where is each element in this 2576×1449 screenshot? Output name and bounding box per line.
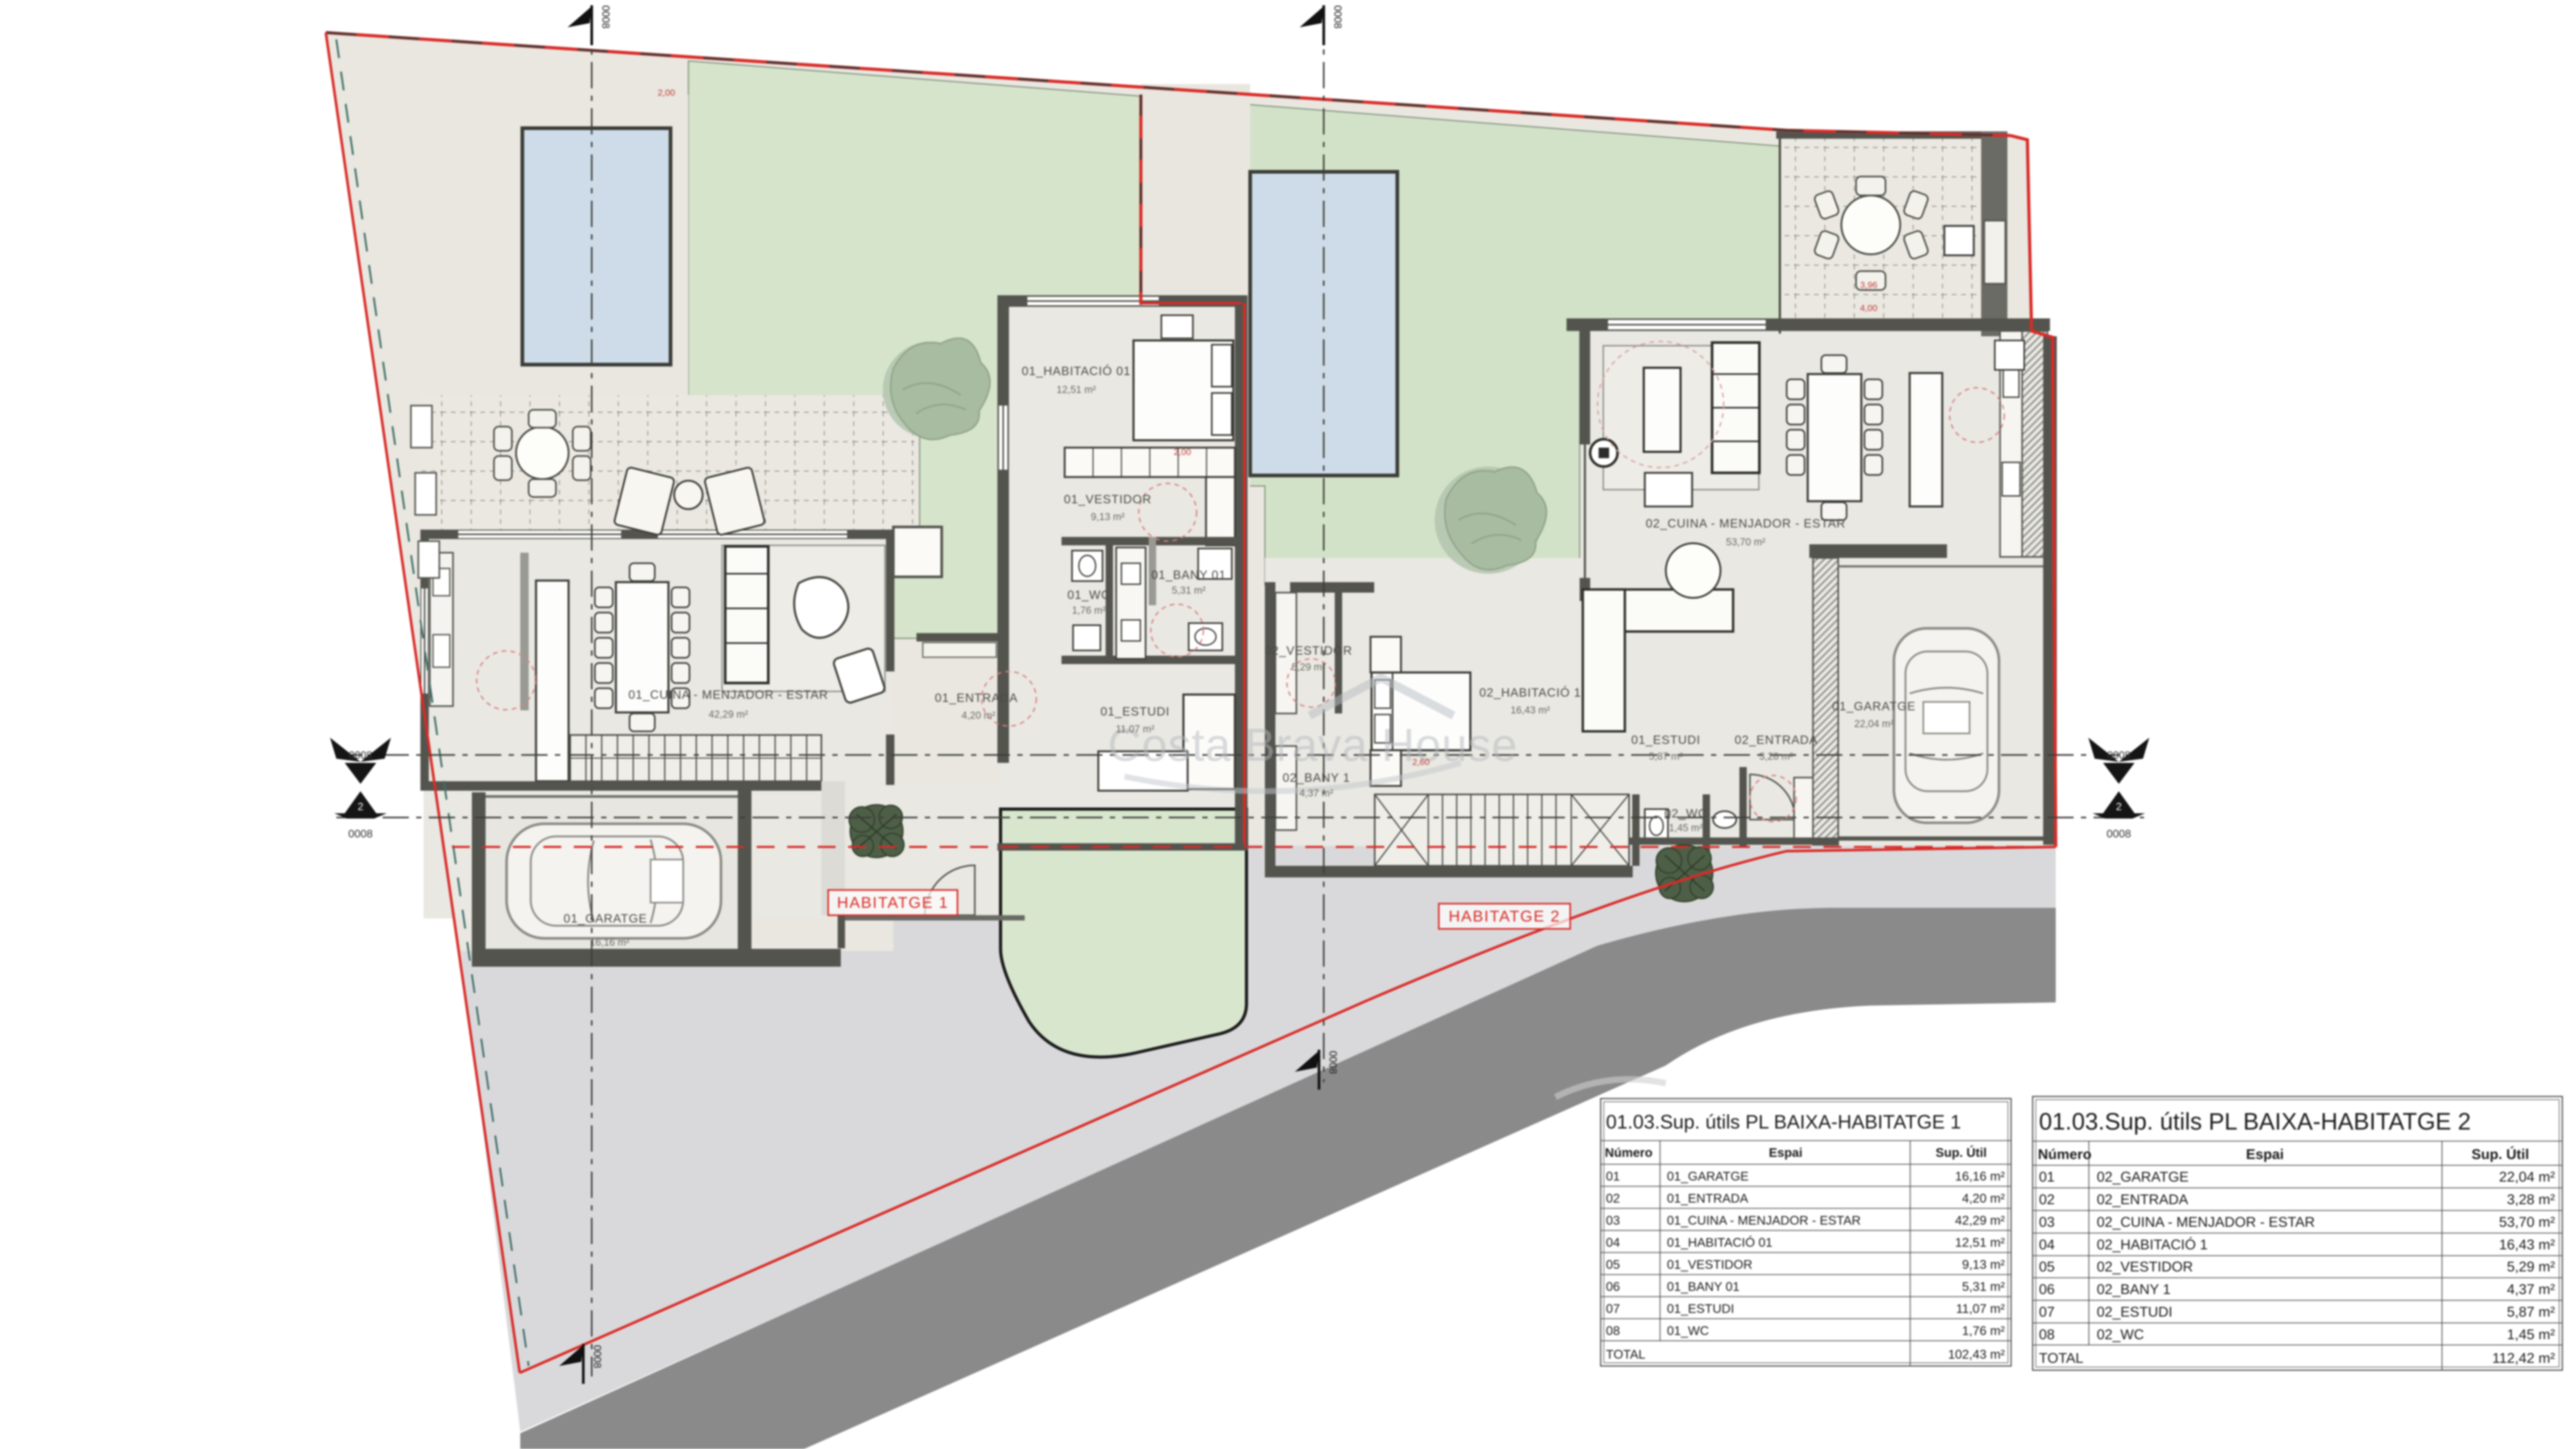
svg-text:03: 03: [2039, 1214, 2055, 1230]
svg-text:02_ENTRADA: 02_ENTRADA: [1735, 733, 1818, 747]
svg-text:3,28 m²: 3,28 m²: [1759, 751, 1793, 762]
svg-text:0008: 0008: [591, 1345, 603, 1369]
svg-text:02: 02: [2039, 1192, 2055, 1207]
svg-text:01_ENTRADA: 01_ENTRADA: [935, 691, 1018, 705]
svg-text:01.03.Sup. útils PL BAIXA-HABI: 01.03.Sup. útils PL BAIXA-HABITATGE 2: [2039, 1108, 2471, 1135]
svg-text:02_HABITACIÓ 1: 02_HABITACIÓ 1: [2097, 1236, 2208, 1253]
svg-text:01_CUINA - MENJADOR - ESTAR: 01_CUINA - MENJADOR - ESTAR: [1667, 1214, 1861, 1228]
svg-text:1,45 m²: 1,45 m²: [2507, 1327, 2555, 1342]
svg-text:4,20 m²: 4,20 m²: [1962, 1192, 2005, 1206]
svg-text:22,04 m²: 22,04 m²: [2499, 1169, 2555, 1185]
svg-text:06: 06: [1606, 1280, 1620, 1294]
svg-text:16,43 m²: 16,43 m²: [2499, 1237, 2555, 1253]
svg-text:07: 07: [2039, 1304, 2055, 1320]
svg-text:Espai: Espai: [2246, 1146, 2284, 1162]
svg-text:Costa Brava House: Costa Brava House: [1108, 719, 1518, 771]
svg-text:9,13 m²: 9,13 m²: [1962, 1258, 2005, 1272]
svg-text:01_ESTUDI: 01_ESTUDI: [1100, 705, 1170, 718]
svg-text:1,76 m²: 1,76 m²: [1072, 605, 1106, 616]
svg-text:5,29 m²: 5,29 m²: [2507, 1259, 2555, 1275]
svg-text:3,28 m²: 3,28 m²: [2507, 1192, 2555, 1207]
svg-text:01.03.Sup. útils PL BAIXA-HABI: 01.03.Sup. útils PL BAIXA-HABITATGE 1: [1606, 1111, 1961, 1133]
svg-text:4,00: 4,00: [1860, 303, 1877, 313]
svg-text:01: 01: [2039, 1169, 2055, 1185]
svg-text:02_CUINA - MENJADOR - ESTAR: 02_CUINA - MENJADOR - ESTAR: [2097, 1214, 2315, 1230]
svg-text:5,31 m²: 5,31 m²: [1172, 585, 1205, 596]
svg-text:02_ESTUDI: 02_ESTUDI: [2097, 1304, 2172, 1320]
svg-text:Espai: Espai: [1769, 1146, 1802, 1160]
svg-text:Número: Número: [2038, 1146, 2091, 1162]
svg-text:01: 01: [1606, 1169, 1620, 1184]
svg-text:Número: Número: [1605, 1146, 1653, 1160]
svg-text:2,00: 2,00: [657, 88, 675, 98]
svg-text:03: 03: [1606, 1214, 1620, 1228]
svg-text:01_BANY 01: 01_BANY 01: [1151, 568, 1227, 582]
svg-text:4,37 m²: 4,37 m²: [1300, 788, 1333, 799]
svg-text:02_BANY 1: 02_BANY 1: [2097, 1281, 2171, 1297]
svg-text:02_WC: 02_WC: [1664, 806, 1707, 820]
svg-text:11,07 m²: 11,07 m²: [1116, 724, 1155, 735]
svg-text:2: 2: [357, 801, 363, 813]
svg-text:01_VESTIDOR: 01_VESTIDOR: [1064, 492, 1152, 506]
svg-text:22,04 m²: 22,04 m²: [1854, 719, 1894, 730]
svg-text:02: 02: [1606, 1192, 1620, 1206]
svg-text:Sup. Útil: Sup. Útil: [2471, 1146, 2529, 1162]
svg-text:11,07 m²: 11,07 m²: [1956, 1302, 2005, 1316]
svg-text:2,60: 2,60: [1412, 757, 1429, 767]
svg-text:02_ENTRADA: 02_ENTRADA: [2097, 1192, 2188, 1207]
svg-text:02_CUINA - MENJADOR - ESTAR: 02_CUINA - MENJADOR - ESTAR: [1646, 516, 1846, 530]
svg-text:01_ESTUDI: 01_ESTUDI: [1667, 1302, 1734, 1316]
svg-text:02_VESTIDOR: 02_VESTIDOR: [2097, 1259, 2193, 1275]
svg-text:16,43 m²: 16,43 m²: [1511, 705, 1550, 716]
svg-text:HABITATGE 1: HABITATGE 1: [837, 894, 949, 912]
svg-text:01_BANY 01: 01_BANY 01: [1667, 1280, 1739, 1294]
svg-text:08: 08: [2039, 1327, 2055, 1342]
svg-text:01_CUINA - MENJADOR - ESTAR: 01_CUINA - MENJADOR - ESTAR: [628, 688, 829, 701]
svg-text:02_HABITACIÓ 1: 02_HABITACIÓ 1: [1479, 686, 1581, 699]
svg-text:42,29 m²: 42,29 m²: [1955, 1214, 2005, 1228]
svg-text:12,51 m²: 12,51 m²: [1955, 1236, 2005, 1250]
svg-text:112,42 m²: 112,42 m²: [2492, 1350, 2555, 1366]
svg-text:02_BANY 1: 02_BANY 1: [1283, 771, 1351, 784]
svg-text:0008: 0008: [600, 5, 611, 29]
svg-text:02_VESTIDOR: 02_VESTIDOR: [1265, 644, 1353, 657]
svg-text:01_GARATGE: 01_GARATGE: [563, 912, 647, 925]
svg-text:4,37 m²: 4,37 m²: [2507, 1281, 2555, 1297]
svg-text:TOTAL: TOTAL: [1606, 1348, 1645, 1362]
svg-text:5,87 m²: 5,87 m²: [2507, 1304, 2555, 1320]
svg-text:4,20 m²: 4,20 m²: [962, 710, 995, 721]
svg-text:5,29 m²: 5,29 m²: [1292, 662, 1325, 673]
svg-text:01_HABITACIÓ 01: 01_HABITACIÓ 01: [1022, 364, 1131, 378]
svg-text:53,70 m²: 53,70 m²: [1726, 537, 1766, 548]
svg-text:12,51 m²: 12,51 m²: [1057, 385, 1096, 396]
svg-text:01_ESTUDI: 01_ESTUDI: [1631, 733, 1701, 747]
svg-text:53,70 m²: 53,70 m²: [2499, 1214, 2555, 1230]
svg-text:TOTAL: TOTAL: [2039, 1350, 2084, 1366]
svg-text:0008: 0008: [1327, 1051, 1338, 1074]
svg-text:01_GARATGE: 01_GARATGE: [1832, 699, 1915, 713]
svg-text:1,76 m²: 1,76 m²: [1962, 1324, 2005, 1338]
svg-text:01_ENTRADA: 01_ENTRADA: [1667, 1192, 1748, 1206]
svg-text:3,96: 3,96: [1860, 280, 1877, 290]
svg-text:0008: 0008: [348, 828, 373, 840]
svg-text:07: 07: [1606, 1302, 1620, 1316]
svg-text:9,13 m²: 9,13 m²: [1091, 512, 1125, 523]
svg-text:HABITATGE 2: HABITATGE 2: [1449, 908, 1561, 925]
svg-text:02_WC: 02_WC: [2097, 1327, 2144, 1342]
svg-text:0008: 0008: [1332, 5, 1343, 29]
svg-text:05: 05: [2039, 1259, 2055, 1275]
svg-text:5,87 m²: 5,87 m²: [1649, 751, 1683, 762]
svg-text:01_WC: 01_WC: [1667, 1324, 1709, 1338]
svg-text:2,00: 2,00: [1173, 447, 1191, 457]
svg-text:16,16 m²: 16,16 m²: [1955, 1169, 2005, 1184]
svg-text:01_WC: 01_WC: [1067, 588, 1110, 602]
svg-text:02_GARATGE: 02_GARATGE: [2097, 1169, 2189, 1185]
svg-text:42,29 m²: 42,29 m²: [709, 709, 748, 720]
svg-text:0008: 0008: [2107, 750, 2131, 761]
svg-text:01_HABITACIÓ 01: 01_HABITACIÓ 01: [1667, 1236, 1773, 1250]
svg-text:05: 05: [1606, 1258, 1620, 1272]
svg-text:16,16 m²: 16,16 m²: [590, 937, 630, 948]
svg-text:01_VESTIDOR: 01_VESTIDOR: [1667, 1258, 1753, 1272]
svg-text:1,45 m²: 1,45 m²: [1669, 823, 1703, 834]
svg-text:06: 06: [2039, 1281, 2055, 1297]
svg-text:08: 08: [1606, 1324, 1620, 1338]
svg-text:2: 2: [2116, 801, 2121, 813]
svg-text:0008: 0008: [349, 750, 373, 761]
svg-text:04: 04: [2039, 1237, 2055, 1253]
svg-text:5,31 m²: 5,31 m²: [1962, 1280, 2005, 1294]
svg-text:Sup. Útil: Sup. Útil: [1935, 1145, 1986, 1160]
svg-text:04: 04: [1606, 1236, 1620, 1250]
svg-text:102,43 m²: 102,43 m²: [1948, 1348, 2005, 1362]
svg-text:0008: 0008: [2107, 828, 2131, 840]
svg-text:01_GARATGE: 01_GARATGE: [1667, 1169, 1749, 1184]
